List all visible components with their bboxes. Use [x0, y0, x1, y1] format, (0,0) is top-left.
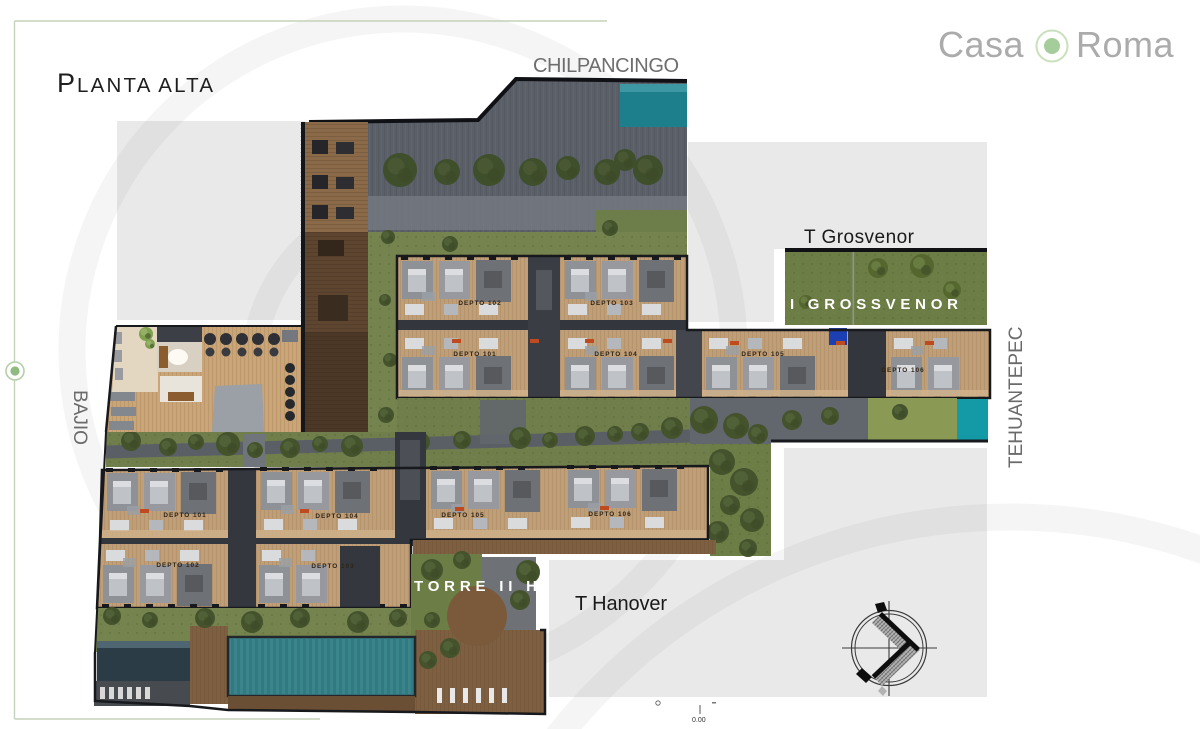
- svg-text:DEPTO 105: DEPTO 105: [741, 351, 784, 358]
- svg-text:DEPTO 106: DEPTO 106: [588, 511, 631, 518]
- svg-text:Roma: Roma: [1076, 24, 1175, 65]
- svg-text:Casa: Casa: [938, 24, 1025, 65]
- svg-text:0.00: 0.00: [692, 717, 706, 724]
- svg-text:TEHUANTEPEC: TEHUANTEPEC: [1006, 327, 1027, 468]
- svg-text:I GROSSVENOR: I GROSSVENOR: [790, 296, 962, 313]
- svg-text:TORRE II H: TORRE II H: [414, 578, 541, 595]
- svg-text:DEPTO 106: DEPTO 106: [881, 367, 924, 374]
- svg-text:DEPTO 105: DEPTO 105: [441, 512, 484, 519]
- svg-text:DEPTO 101: DEPTO 101: [453, 351, 496, 358]
- svg-text:DEPTO 104: DEPTO 104: [315, 513, 358, 520]
- svg-text:T Grosvenor: T Grosvenor: [804, 227, 915, 248]
- svg-text:DEPTO 102: DEPTO 102: [458, 300, 501, 307]
- svg-text:CHILPANCINGO: CHILPANCINGO: [533, 55, 679, 77]
- svg-text:DEPTO 103: DEPTO 103: [590, 300, 633, 307]
- svg-text:DEPTO 101: DEPTO 101: [163, 512, 206, 519]
- svg-text:DEPTO 104: DEPTO 104: [594, 351, 637, 358]
- svg-text:T Hanover: T Hanover: [575, 593, 667, 615]
- svg-text:DEPTO 102: DEPTO 102: [156, 562, 199, 569]
- svg-text:DEPTO 103: DEPTO 103: [311, 563, 354, 570]
- svg-text:BAJIO: BAJIO: [69, 390, 90, 445]
